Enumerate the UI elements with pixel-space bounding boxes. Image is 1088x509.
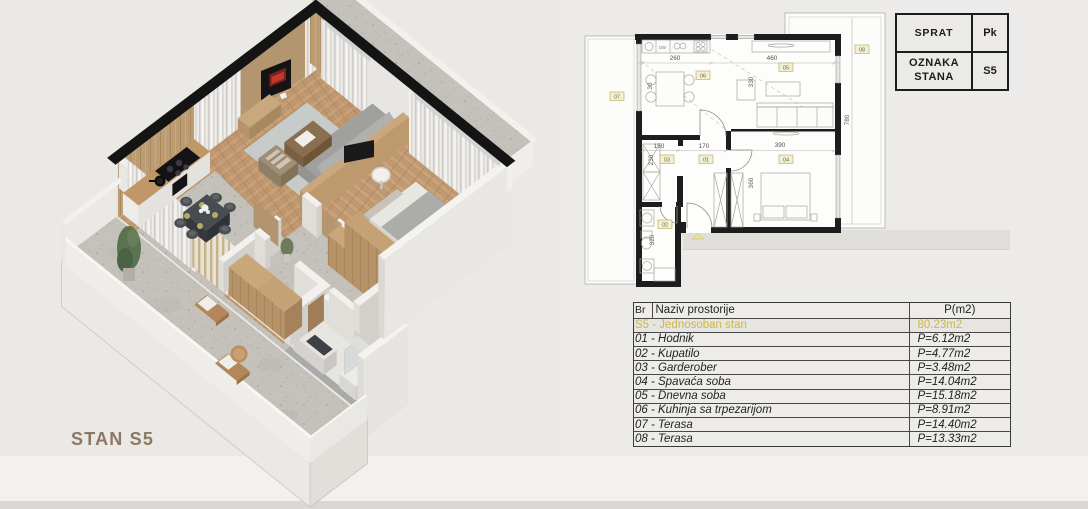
svg-text:01: 01 <box>703 157 709 163</box>
svg-text:30: 30 <box>647 82 654 90</box>
svg-text:04: 04 <box>783 157 789 163</box>
svg-text:390: 390 <box>775 142 786 149</box>
svg-text:06: 06 <box>700 73 706 79</box>
svg-text:150: 150 <box>654 143 665 150</box>
svg-text:03: 03 <box>664 157 670 163</box>
svg-text:STAN S5: STAN S5 <box>71 429 154 449</box>
svg-text:170: 170 <box>699 143 710 150</box>
svg-text:320: 320 <box>649 234 656 245</box>
svg-text:460: 460 <box>767 55 778 62</box>
svg-text:DW: DW <box>659 45 666 50</box>
svg-text:260: 260 <box>670 55 681 62</box>
svg-text:05: 05 <box>783 65 789 71</box>
svg-text:330: 330 <box>748 76 755 87</box>
svg-text:08: 08 <box>859 47 865 53</box>
svg-text:02: 02 <box>662 222 668 228</box>
svg-text:230: 230 <box>648 154 655 165</box>
svg-text:07: 07 <box>614 94 620 100</box>
svg-text:360: 360 <box>748 177 755 188</box>
svg-text:780: 780 <box>844 114 851 125</box>
